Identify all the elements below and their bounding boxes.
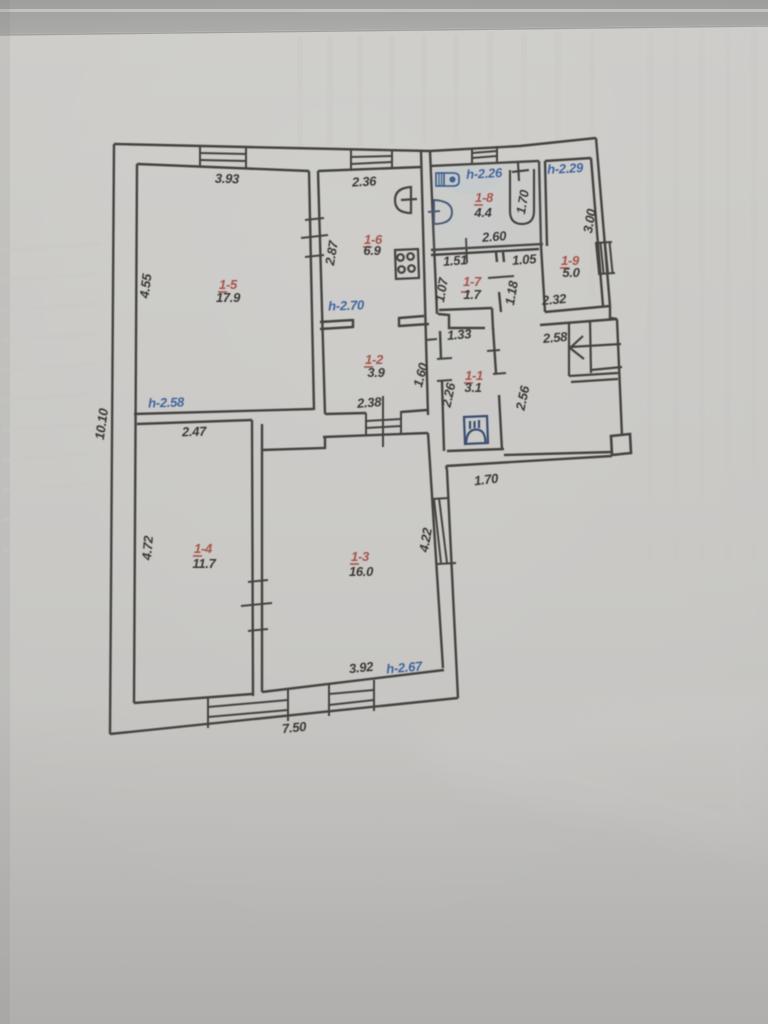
svg-text:2.32: 2.32 bbox=[540, 291, 567, 308]
svg-text:7.50: 7.50 bbox=[281, 719, 308, 737]
svg-text:5.0: 5.0 bbox=[562, 265, 580, 280]
svg-text:1-4: 1-4 bbox=[194, 541, 213, 556]
svg-text:2.58: 2.58 bbox=[541, 329, 568, 346]
svg-text:6.9: 6.9 bbox=[363, 243, 381, 258]
svg-text:4.72: 4.72 bbox=[139, 534, 156, 561]
svg-text:1.33: 1.33 bbox=[446, 326, 472, 343]
svg-text:1.51: 1.51 bbox=[442, 252, 467, 269]
svg-text:2.47: 2.47 bbox=[181, 424, 208, 440]
svg-text:h-2.70: h-2.70 bbox=[328, 297, 365, 313]
svg-text:2.60: 2.60 bbox=[480, 228, 507, 245]
svg-text:1.7: 1.7 bbox=[463, 287, 481, 302]
svg-text:1.70: 1.70 bbox=[473, 470, 500, 488]
svg-text:h-2.67: h-2.67 bbox=[386, 658, 424, 676]
svg-text:3.93: 3.93 bbox=[215, 171, 241, 187]
svg-text:2.36: 2.36 bbox=[351, 173, 378, 189]
svg-text:16.0: 16.0 bbox=[349, 564, 374, 579]
svg-text:17.9: 17.9 bbox=[216, 290, 241, 305]
svg-text:1-8: 1-8 bbox=[475, 190, 494, 205]
svg-text:3.1: 3.1 bbox=[464, 380, 481, 395]
svg-text:2.38: 2.38 bbox=[355, 394, 382, 411]
svg-text:h-2.58: h-2.58 bbox=[148, 394, 185, 410]
svg-text:3.92: 3.92 bbox=[348, 659, 375, 677]
svg-text:11.7: 11.7 bbox=[192, 556, 216, 571]
svg-text:3.9: 3.9 bbox=[367, 365, 385, 380]
svg-text:4.55: 4.55 bbox=[136, 272, 154, 300]
svg-text:h-2.26: h-2.26 bbox=[466, 165, 504, 182]
svg-text:1.05: 1.05 bbox=[511, 251, 537, 268]
svg-text:4.4: 4.4 bbox=[473, 205, 492, 220]
svg-text:1-3: 1-3 bbox=[351, 549, 370, 564]
svg-text:h-2.29: h-2.29 bbox=[547, 160, 585, 177]
